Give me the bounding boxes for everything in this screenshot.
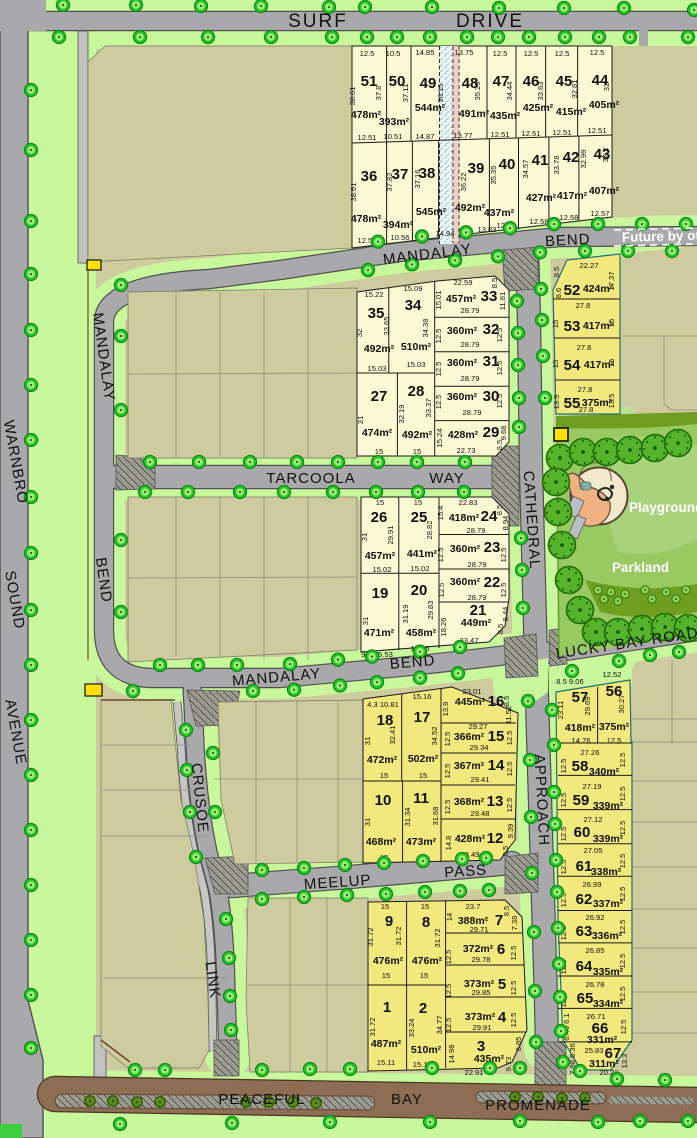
- svg-text:12.5: 12.5: [559, 759, 568, 774]
- svg-text:26.78: 26.78: [585, 980, 604, 989]
- svg-text:428m²: 428m²: [455, 833, 486, 845]
- svg-text:14.76: 14.76: [571, 736, 590, 745]
- svg-text:8.5: 8.5: [495, 440, 504, 451]
- svg-text:15: 15: [607, 319, 616, 327]
- svg-text:12.5: 12.5: [499, 583, 508, 598]
- svg-text:12.5: 12.5: [444, 1018, 453, 1033]
- svg-text:476m²: 476m²: [373, 955, 404, 967]
- svg-text:14.87: 14.87: [415, 132, 434, 141]
- svg-text:28: 28: [408, 383, 425, 400]
- svg-text:29: 29: [483, 424, 500, 441]
- svg-text:23: 23: [484, 539, 501, 556]
- svg-text:26.85: 26.85: [585, 946, 604, 955]
- svg-text:14.85: 14.85: [415, 48, 434, 57]
- svg-text:BAY: BAY: [391, 1091, 423, 1108]
- svg-text:4.3 10.81: 4.3 10.81: [367, 700, 399, 709]
- svg-text:8: 8: [422, 914, 430, 931]
- svg-text:63: 63: [576, 923, 593, 940]
- svg-text:15: 15: [419, 771, 427, 780]
- svg-text:12.5: 12.5: [618, 920, 627, 935]
- svg-text:11.81: 11.81: [498, 292, 507, 310]
- svg-text:415m²: 415m²: [556, 106, 587, 118]
- svg-text:15: 15: [382, 971, 390, 980]
- svg-text:15: 15: [381, 902, 389, 911]
- svg-text:31: 31: [363, 818, 372, 826]
- svg-text:29.27: 29.27: [468, 722, 487, 731]
- svg-text:12.5: 12.5: [618, 954, 627, 969]
- svg-text:32.2: 32.2: [601, 148, 610, 163]
- svg-text:15: 15: [420, 971, 428, 980]
- svg-text:31: 31: [361, 617, 370, 625]
- svg-text:418m²: 418m²: [449, 512, 480, 524]
- svg-text:457m²: 457m²: [365, 550, 396, 562]
- svg-text:65: 65: [577, 990, 594, 1007]
- svg-text:12.5: 12.5: [619, 1020, 628, 1035]
- svg-text:32.81: 32.81: [570, 79, 579, 98]
- svg-text:427m²: 427m²: [526, 192, 557, 204]
- svg-text:13.83: 13.83: [477, 225, 496, 234]
- svg-text:28.79: 28.79: [460, 374, 479, 383]
- svg-text:12.57: 12.57: [590, 209, 609, 218]
- svg-text:14: 14: [488, 757, 505, 774]
- svg-text:12: 12: [487, 830, 504, 847]
- svg-text:34: 34: [405, 297, 422, 314]
- svg-text:12.5: 12.5: [618, 821, 627, 836]
- svg-text:26.99: 26.99: [582, 880, 601, 889]
- svg-text:32.99: 32.99: [579, 149, 588, 168]
- svg-text:28.79: 28.79: [466, 526, 485, 535]
- svg-text:29.83: 29.83: [426, 600, 435, 619]
- svg-text:7.38: 7.38: [510, 916, 519, 931]
- svg-text:26.92: 26.92: [585, 913, 604, 922]
- svg-text:340m²: 340m²: [589, 766, 620, 778]
- svg-text:31: 31: [356, 416, 365, 424]
- svg-text:12.5: 12.5: [493, 49, 508, 58]
- svg-text:29.91: 29.91: [386, 525, 395, 544]
- svg-text:28.79: 28.79: [462, 408, 481, 417]
- svg-text:34.77: 34.77: [435, 1015, 444, 1034]
- svg-text:8.5: 8.5: [502, 696, 511, 707]
- svg-text:PROMENADE: PROMENADE: [485, 1097, 591, 1114]
- svg-text:471m²: 471m²: [364, 627, 395, 639]
- svg-text:28.82: 28.82: [425, 520, 434, 539]
- svg-text:29.48: 29.48: [470, 809, 489, 818]
- svg-text:12.51: 12.51: [587, 126, 606, 135]
- svg-text:14.98: 14.98: [447, 1044, 456, 1063]
- svg-text:12.5: 12.5: [495, 328, 504, 343]
- svg-text:487m²: 487m²: [371, 1038, 402, 1050]
- svg-text:27: 27: [371, 388, 388, 405]
- svg-text:29.91: 29.91: [472, 1023, 491, 1032]
- svg-text:29.34: 29.34: [469, 743, 488, 752]
- svg-text:22.27: 22.27: [579, 261, 598, 270]
- svg-text:8.44: 8.44: [501, 607, 510, 622]
- svg-text:37.16: 37.16: [413, 169, 422, 188]
- svg-text:15.02: 15.02: [410, 564, 429, 573]
- svg-text:37.8: 37.8: [374, 86, 383, 101]
- svg-text:13.5: 13.5: [552, 395, 561, 410]
- svg-text:510m²: 510m²: [411, 1044, 442, 1056]
- svg-text:29.71: 29.71: [469, 925, 488, 934]
- svg-text:9.73: 9.73: [504, 1057, 513, 1072]
- svg-text:12.52: 12.52: [602, 670, 621, 679]
- svg-text:15: 15: [551, 320, 560, 328]
- svg-text:12.58: 12.58: [559, 213, 578, 222]
- svg-text:15.02: 15.02: [372, 565, 391, 574]
- svg-text:33.65: 33.65: [382, 316, 391, 335]
- svg-text:34.44: 34.44: [505, 81, 514, 100]
- svg-text:1: 1: [383, 999, 391, 1016]
- svg-text:31: 31: [360, 533, 369, 541]
- svg-text:375m²: 375m²: [599, 721, 630, 733]
- svg-text:32: 32: [602, 83, 611, 91]
- svg-text:360m²: 360m²: [447, 357, 478, 369]
- svg-text:510m²: 510m²: [401, 341, 432, 353]
- svg-text:Playground: Playground: [629, 500, 697, 515]
- svg-text:12.51: 12.51: [357, 133, 376, 142]
- svg-text:35.35: 35.35: [489, 165, 498, 184]
- svg-text:12.5: 12.5: [444, 984, 453, 999]
- svg-text:Future by oth: Future by oth: [622, 228, 697, 245]
- svg-text:15.09: 15.09: [403, 284, 422, 293]
- svg-text:12.5: 12.5: [618, 987, 627, 1002]
- svg-text:367m²: 367m²: [454, 760, 485, 772]
- svg-text:27.8: 27.8: [579, 405, 594, 414]
- svg-text:12.5: 12.5: [443, 732, 452, 747]
- svg-text:15.01: 15.01: [434, 290, 443, 309]
- svg-text:29.85: 29.85: [471, 988, 490, 997]
- svg-text:502m²: 502m²: [408, 753, 439, 765]
- svg-text:360m²: 360m²: [450, 543, 481, 555]
- svg-text:2: 2: [419, 1000, 427, 1017]
- svg-text:12.51: 12.51: [490, 130, 509, 139]
- svg-text:15: 15: [376, 498, 384, 507]
- svg-text:26.71: 26.71: [586, 1012, 605, 1021]
- svg-text:12.5: 12.5: [505, 798, 514, 813]
- svg-text:TARCOOLA: TARCOOLA: [266, 470, 355, 487]
- svg-text:33.78: 33.78: [552, 155, 561, 174]
- svg-text:27.8: 27.8: [577, 343, 592, 352]
- svg-text:12.5: 12.5: [555, 49, 570, 58]
- svg-text:DRIVE: DRIVE: [456, 11, 524, 32]
- svg-text:12.5: 12.5: [499, 548, 508, 563]
- svg-text:13.9: 13.9: [441, 702, 450, 717]
- svg-text:13: 13: [487, 793, 504, 810]
- svg-text:12.5: 12.5: [434, 329, 443, 344]
- svg-text:36: 36: [361, 168, 378, 185]
- svg-text:468m²: 468m²: [366, 836, 397, 848]
- svg-text:29.69: 29.69: [583, 696, 592, 715]
- svg-text:31.68: 31.68: [431, 806, 440, 825]
- svg-text:22.83: 22.83: [458, 498, 477, 507]
- svg-text:32.19: 32.19: [397, 404, 406, 423]
- svg-text:28.79: 28.79: [467, 560, 486, 569]
- svg-text:22.91: 22.91: [464, 1068, 483, 1077]
- svg-text:15: 15: [551, 360, 560, 368]
- svg-text:476m²: 476m²: [412, 955, 443, 967]
- svg-text:9.68: 9.68: [499, 426, 508, 441]
- svg-text:491m²: 491m²: [459, 108, 490, 120]
- svg-text:360m²: 360m²: [447, 391, 478, 403]
- svg-text:37: 37: [392, 166, 409, 183]
- svg-text:6: 6: [497, 941, 505, 958]
- svg-text:12.58: 12.58: [529, 217, 548, 226]
- svg-text:368m²: 368m²: [454, 796, 485, 808]
- svg-text:23.7: 23.7: [466, 902, 481, 911]
- svg-text:WAY: WAY: [429, 470, 465, 487]
- svg-text:8.5: 8.5: [496, 624, 505, 635]
- svg-text:12.5: 12.5: [618, 854, 627, 869]
- svg-text:12.5: 12.5: [443, 800, 452, 815]
- svg-text:64: 64: [576, 958, 593, 975]
- svg-text:31.34: 31.34: [403, 807, 412, 826]
- svg-text:12.5: 12.5: [495, 361, 504, 376]
- svg-text:12.5: 12.5: [509, 1013, 518, 1028]
- svg-text:58: 58: [572, 758, 589, 775]
- svg-text:PASS: PASS: [444, 862, 488, 882]
- svg-text:437m²: 437m²: [484, 207, 515, 219]
- svg-text:12.5: 12.5: [618, 753, 627, 768]
- svg-text:12.5: 12.5: [436, 548, 445, 563]
- svg-text:441m²: 441m²: [407, 548, 438, 560]
- svg-text:405m²: 405m²: [589, 99, 620, 111]
- svg-text:360m²: 360m²: [447, 325, 478, 337]
- svg-text:22.73: 22.73: [456, 446, 475, 455]
- svg-text:41: 41: [532, 152, 549, 169]
- svg-text:SURF: SURF: [288, 11, 348, 32]
- svg-text:428m²: 428m²: [448, 429, 479, 441]
- svg-text:12.5: 12.5: [607, 736, 622, 745]
- svg-text:15.4: 15.4: [436, 506, 445, 521]
- svg-text:10: 10: [375, 792, 392, 809]
- svg-text:59: 59: [573, 792, 590, 809]
- svg-text:42: 42: [563, 149, 580, 166]
- svg-text:29.78: 29.78: [471, 955, 490, 964]
- svg-text:25.83: 25.83: [584, 1046, 603, 1055]
- svg-text:12.51: 12.51: [552, 128, 571, 137]
- svg-text:Parkland: Parkland: [612, 560, 669, 575]
- svg-text:492m²: 492m²: [364, 343, 395, 355]
- svg-text:27.05: 27.05: [583, 846, 602, 855]
- svg-text:544m²: 544m²: [415, 102, 446, 114]
- svg-text:449m²: 449m²: [461, 617, 492, 629]
- svg-text:14.8: 14.8: [444, 836, 453, 851]
- svg-text:28.79: 28.79: [467, 593, 486, 602]
- svg-text:458m²: 458m²: [406, 627, 437, 639]
- svg-text:15.24: 15.24: [435, 428, 444, 447]
- svg-text:8.5: 8.5: [501, 846, 510, 857]
- svg-text:BEND: BEND: [545, 231, 592, 250]
- svg-text:38.61: 38.61: [349, 182, 358, 201]
- svg-text:473m²: 473m²: [406, 836, 437, 848]
- svg-text:13.3: 13.3: [620, 1054, 629, 1069]
- svg-text:12.5: 12.5: [618, 887, 627, 902]
- svg-text:33.37: 33.37: [424, 398, 433, 417]
- svg-text:37.11: 37.11: [401, 84, 410, 102]
- svg-text:12.5: 12.5: [505, 731, 514, 746]
- svg-text:8.6: 8.6: [554, 288, 563, 299]
- svg-text:23.01: 23.01: [462, 687, 481, 696]
- svg-text:34.57: 34.57: [521, 159, 530, 178]
- svg-text:393m²: 393m²: [379, 116, 410, 128]
- svg-text:31.72: 31.72: [394, 926, 403, 945]
- svg-text:15.16: 15.16: [412, 692, 431, 701]
- svg-text:8.5 9.06: 8.5 9.06: [556, 677, 583, 686]
- svg-text:14.94: 14.94: [435, 229, 454, 238]
- svg-text:394m²: 394m²: [383, 219, 414, 231]
- svg-text:34.52: 34.52: [430, 726, 439, 745]
- svg-text:60: 60: [574, 824, 591, 841]
- svg-text:52: 52: [564, 282, 581, 299]
- svg-text:38.61: 38.61: [348, 86, 357, 105]
- svg-text:12.5: 12.5: [618, 787, 627, 802]
- svg-text:12.5: 12.5: [495, 394, 504, 409]
- svg-text:457m²: 457m²: [446, 293, 477, 305]
- svg-text:39: 39: [468, 160, 485, 177]
- svg-text:15.11: 15.11: [377, 1058, 395, 1067]
- svg-text:9.39: 9.39: [506, 824, 515, 839]
- svg-text:331m²: 331m²: [587, 1034, 618, 1046]
- svg-text:8.94: 8.94: [501, 516, 510, 531]
- svg-text:53: 53: [564, 318, 581, 335]
- svg-text:372m²: 372m²: [463, 943, 494, 955]
- svg-text:15: 15: [380, 771, 388, 780]
- svg-text:492m²: 492m²: [455, 202, 486, 214]
- svg-text:373m²: 373m²: [465, 1011, 496, 1023]
- svg-text:32: 32: [355, 329, 364, 337]
- svg-text:8.5: 8.5: [495, 505, 504, 516]
- svg-text:418m²: 418m²: [565, 722, 596, 734]
- svg-text:15.03: 15.03: [406, 360, 425, 369]
- svg-text:407m²: 407m²: [589, 185, 620, 197]
- svg-text:492m²: 492m²: [402, 429, 433, 441]
- svg-text:474m²: 474m²: [362, 427, 393, 439]
- svg-text:13.77: 13.77: [453, 131, 472, 140]
- svg-text:14: 14: [445, 913, 454, 921]
- svg-text:29.41: 29.41: [470, 775, 489, 784]
- svg-text:36.22: 36.22: [459, 172, 468, 191]
- svg-text:12.5: 12.5: [505, 762, 514, 777]
- svg-text:31.72: 31.72: [368, 1017, 377, 1036]
- svg-text:15.03: 15.03: [367, 364, 386, 373]
- svg-text:12.5: 12.5: [443, 764, 452, 779]
- svg-text:12.5: 12.5: [559, 827, 568, 842]
- svg-text:31.72: 31.72: [366, 927, 375, 946]
- svg-text:40: 40: [499, 156, 516, 173]
- svg-text:19: 19: [372, 585, 389, 602]
- svg-text:22.59: 22.59: [453, 278, 472, 287]
- svg-text:13.5: 13.5: [607, 394, 616, 409]
- svg-text:8.85: 8.85: [514, 1037, 523, 1052]
- svg-text:36.15: 36.15: [436, 83, 445, 102]
- svg-text:37.82: 37.82: [385, 172, 394, 191]
- svg-text:15: 15: [607, 359, 616, 367]
- svg-text:27.19: 27.19: [582, 782, 601, 791]
- svg-text:33.24: 33.24: [407, 1018, 416, 1037]
- svg-text:27.8: 27.8: [578, 385, 593, 394]
- svg-text:20: 20: [411, 582, 428, 599]
- svg-text:11: 11: [413, 790, 429, 807]
- svg-text:12.5: 12.5: [509, 981, 518, 996]
- svg-text:12.5: 12.5: [434, 362, 443, 377]
- svg-text:32.41: 32.41: [388, 725, 397, 744]
- svg-text:33: 33: [481, 288, 498, 305]
- svg-text:8.5: 8.5: [552, 267, 561, 278]
- svg-text:PEACEFUL: PEACEFUL: [218, 1091, 305, 1108]
- svg-text:35.25: 35.25: [473, 81, 482, 100]
- svg-text:26: 26: [371, 509, 388, 526]
- svg-text:15: 15: [488, 728, 505, 745]
- svg-text:12.5: 12.5: [509, 946, 518, 961]
- svg-text:425m²: 425m²: [523, 102, 554, 114]
- svg-text:12.51: 12.51: [521, 129, 540, 138]
- svg-text:478m²: 478m²: [351, 109, 382, 121]
- svg-text:15.22: 15.22: [364, 290, 383, 299]
- svg-text:5: 5: [498, 976, 506, 993]
- svg-text:17.37: 17.37: [607, 271, 616, 290]
- svg-text:9: 9: [385, 913, 393, 930]
- svg-text:10.5: 10.5: [386, 49, 401, 58]
- svg-text:435m²: 435m²: [490, 110, 521, 122]
- svg-text:62: 62: [576, 891, 593, 908]
- svg-text:478m²: 478m²: [351, 213, 382, 225]
- svg-text:27.8: 27.8: [576, 301, 591, 310]
- svg-text:10.51: 10.51: [383, 132, 402, 141]
- svg-text:8.5: 8.5: [490, 278, 499, 289]
- svg-text:12.5: 12.5: [437, 583, 446, 598]
- svg-text:8.5: 8.5: [502, 906, 511, 917]
- svg-text:49: 49: [420, 75, 437, 92]
- svg-text:31.19: 31.19: [401, 604, 410, 623]
- svg-text:54: 54: [564, 357, 581, 374]
- svg-text:28.79: 28.79: [460, 340, 479, 349]
- svg-text:366m²: 366m²: [454, 731, 485, 743]
- svg-text:33.63: 33.63: [536, 81, 545, 100]
- svg-text:12.5: 12.5: [590, 48, 605, 57]
- svg-text:31: 31: [363, 737, 372, 745]
- svg-text:22: 22: [484, 574, 501, 591]
- svg-text:12.5: 12.5: [524, 49, 539, 58]
- svg-text:15: 15: [414, 498, 422, 507]
- svg-text:445m²: 445m²: [455, 696, 486, 708]
- svg-text:17: 17: [414, 709, 431, 726]
- svg-text:12.5: 12.5: [444, 950, 453, 965]
- svg-text:27.12: 27.12: [583, 815, 602, 824]
- svg-text:545m²: 545m²: [416, 206, 447, 218]
- svg-text:10.56: 10.56: [390, 233, 409, 242]
- svg-text:12.5: 12.5: [434, 395, 443, 410]
- svg-text:12.5: 12.5: [360, 49, 375, 58]
- svg-text:28.79: 28.79: [460, 306, 479, 315]
- svg-text:15: 15: [375, 447, 383, 456]
- svg-text:13.75: 13.75: [454, 48, 473, 57]
- svg-text:31.72: 31.72: [433, 928, 442, 947]
- svg-text:11.52: 11.52: [504, 706, 513, 724]
- svg-text:34.38: 34.38: [421, 318, 430, 337]
- svg-text:360m²: 360m²: [450, 576, 481, 588]
- svg-text:27.26: 27.26: [580, 748, 599, 757]
- svg-text:4: 4: [498, 1009, 507, 1026]
- svg-text:15: 15: [413, 447, 421, 456]
- svg-text:472m²: 472m²: [367, 754, 398, 766]
- svg-text:30.27: 30.27: [617, 694, 626, 713]
- svg-text:15: 15: [421, 902, 429, 911]
- svg-text:18.26: 18.26: [439, 617, 448, 636]
- svg-text:417m²: 417m²: [557, 190, 588, 202]
